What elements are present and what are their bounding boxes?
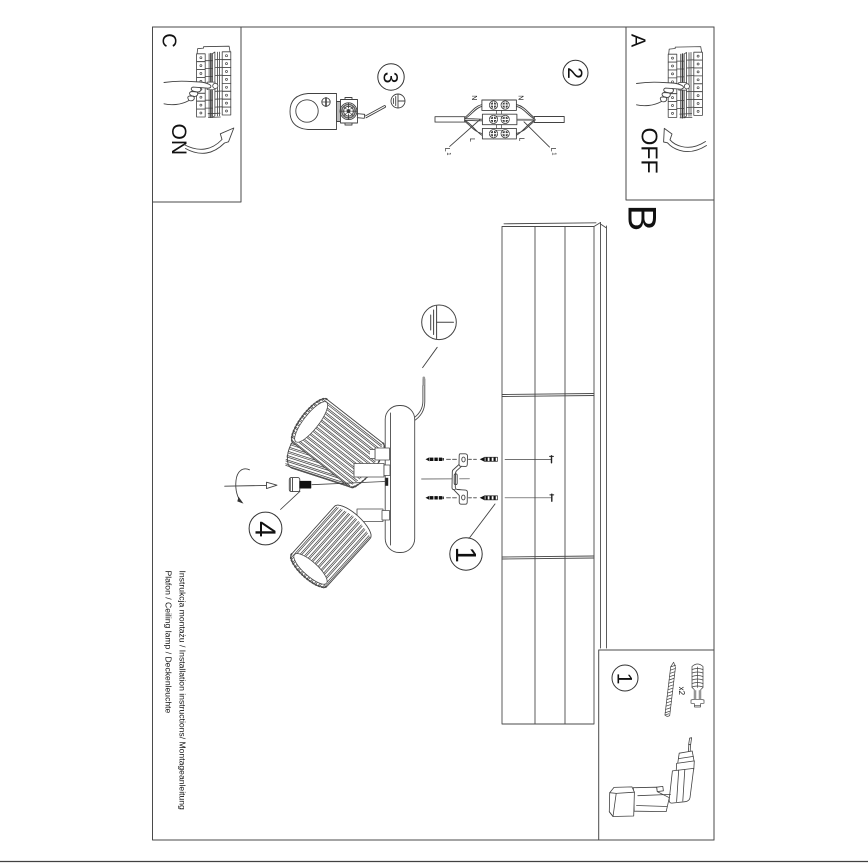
svg-text:1: 1 (445, 152, 451, 155)
svg-text:Instrukcja montażu / Installat: Instrukcja montażu / Installation instru… (178, 571, 188, 811)
svg-text:1: 1 (449, 547, 481, 563)
svg-text:1: 1 (613, 673, 636, 685)
svg-text:4: 4 (248, 521, 280, 537)
svg-text:L: L (549, 148, 556, 152)
svg-text:2: 2 (563, 67, 586, 79)
svg-text:N: N (517, 95, 524, 100)
svg-text:OFF: OFF (636, 128, 662, 174)
svg-text:ON: ON (167, 124, 190, 156)
svg-text:Plafon / Ceiling lamp / Decken: Plafon / Ceiling lamp / Deckenleuchte (164, 571, 174, 714)
svg-text:3: 3 (379, 72, 402, 84)
svg-text:N: N (470, 95, 477, 100)
svg-text:x2: x2 (677, 687, 686, 696)
svg-text:1: 1 (550, 152, 556, 155)
svg-text:L: L (443, 148, 450, 152)
svg-text:C: C (157, 33, 179, 47)
svg-text:L: L (517, 137, 524, 141)
svg-text:B: B (620, 205, 664, 232)
svg-text:L: L (468, 138, 475, 142)
svg-text:A: A (627, 34, 649, 48)
